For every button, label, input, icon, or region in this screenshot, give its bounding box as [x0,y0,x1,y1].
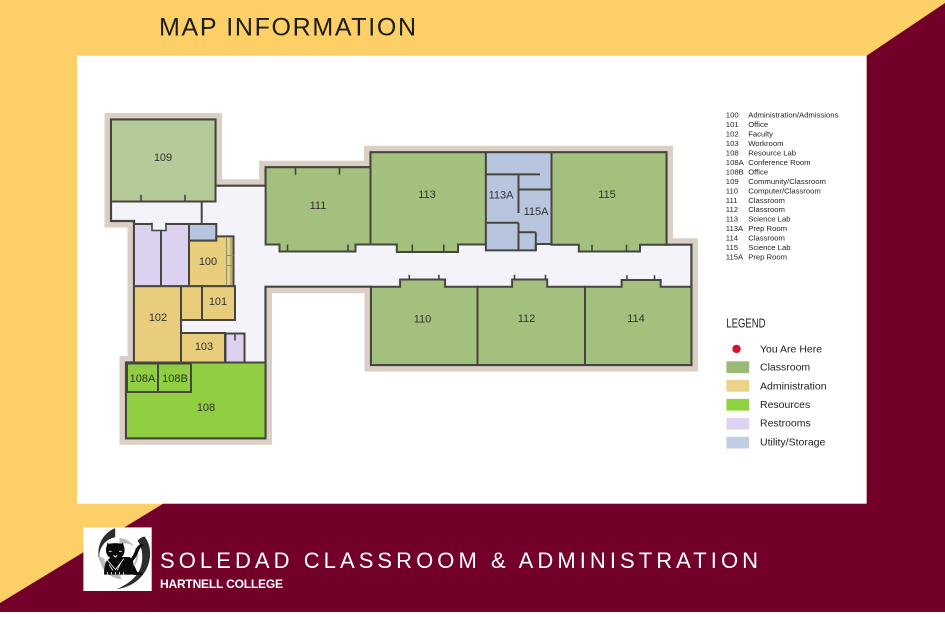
svg-text:103: 103 [195,341,213,353]
svg-text:110: 110 [414,314,432,326]
svg-text:Utility/Storage: Utility/Storage [760,436,826,448]
svg-text:113A: 113A [489,190,515,202]
svg-text:115A: 115A [524,206,550,218]
svg-text:113APrep Room: 113APrep Room [726,224,787,233]
svg-text:113: 113 [418,189,436,201]
svg-text:108B: 108B [162,373,188,385]
svg-text:102Faculty: 102Faculty [726,130,773,139]
svg-text:115Science Lab: 115Science Lab [726,243,791,252]
svg-text:115APrep Room: 115APrep Room [726,253,787,262]
svg-text:114: 114 [627,313,645,325]
svg-text:113Science Lab: 113Science Lab [726,215,791,224]
svg-text:112Classroom: 112Classroom [726,205,785,214]
svg-text:108AConference Room: 108AConference Room [726,158,811,167]
svg-text:109: 109 [154,152,172,164]
svg-text:101: 101 [209,296,227,308]
svg-text:HARTNELL COLLEGE: HARTNELL COLLEGE [160,577,283,591]
svg-text:115: 115 [598,189,616,201]
svg-text:111Classroom: 111Classroom [726,196,785,205]
svg-text:Administration: Administration [760,380,827,392]
svg-text:114Classroom: 114Classroom [726,234,785,243]
svg-text:You Are Here: You Are Here [760,344,822,356]
svg-text:108A: 108A [130,373,156,385]
svg-text:100: 100 [199,256,217,268]
svg-text:102: 102 [149,312,167,324]
svg-text:LEGEND: LEGEND [726,317,765,331]
svg-text:Classroom: Classroom [760,361,810,373]
svg-text:MAP INFORMATION: MAP INFORMATION [159,13,416,41]
svg-text:108: 108 [197,402,215,414]
svg-text:108Resource Lab: 108Resource Lab [726,149,796,158]
svg-text:111: 111 [310,200,327,212]
svg-text:SOLEDAD CLASSROOM & ADMINISTRA: SOLEDAD CLASSROOM & ADMINISTRATION [160,548,758,573]
svg-text:Restrooms: Restrooms [760,418,811,430]
svg-text:103Workroom: 103Workroom [726,139,784,148]
svg-text:Resources: Resources [760,399,810,411]
svg-text:112: 112 [518,313,536,325]
